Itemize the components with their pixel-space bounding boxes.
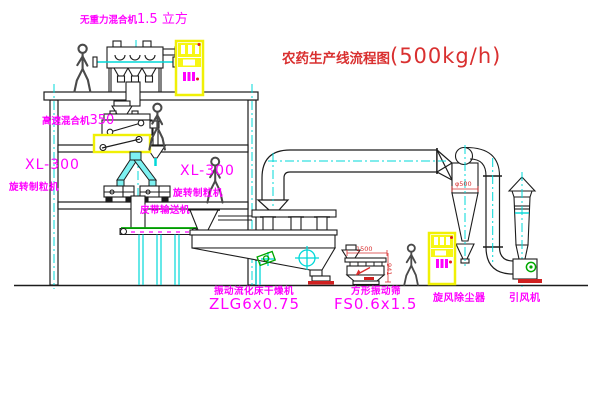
induced-draft-fan [513,259,542,283]
belt-conveyor [120,228,198,285]
dim-screen-length: 1500 [356,246,373,253]
fluid-bed-dryer [188,210,337,285]
duct-centerlines [268,153,446,206]
label-gravity-mixer: 无重力混合机1.5 立方 [80,10,188,26]
downcomer-duct [483,176,513,274]
label-screen-model: FS0.6x1.5 [334,297,417,312]
high-speed-mixer-name: 高速混合机 [42,116,90,127]
label-belt-conveyor: 皮带输送机 [140,206,190,216]
dim-cyclone-diameter: φ500 [455,181,472,188]
worker-figure [74,45,90,92]
label-dryer-model: ZLG6x0.75 [209,297,300,312]
control-cabinet-ground [429,233,455,284]
control-cabinet-top [176,41,203,95]
label-cyclone: 旋风除尘器 [433,294,486,304]
gravity-mixer-spec: 1.5 立方 [137,12,188,27]
page-title: 农药生产线流程图(500kg/h) [282,46,501,67]
high-speed-mixer-spec: 350 [90,113,115,128]
gravity-mixer-name: 无重力混合机 [80,15,137,26]
label-fan: 引风机 [509,294,541,304]
label-granulator-right-name: 旋转制粒机 [173,189,223,199]
y-chute [117,152,156,187]
title-capacity: (500kg/h) [390,44,501,68]
label-granulator-right-model: XL-300 [180,164,235,178]
label-granulator-left-model: XL-300 [25,158,80,172]
granulator-left [104,186,134,202]
exhaust-duct [258,148,452,210]
flow-diagram-canvas: 无重力混合机1.5 立方 农药生产线流程图(500kg/h) 高速混合机350 … [0,0,600,403]
label-granulator-left-name: 旋转制粒机 [9,183,59,193]
worker-figure [404,245,418,286]
dim-screen-height: 941 [386,263,393,275]
drive-base-cabinet [94,135,150,152]
title-text: 农药生产线流程图 [282,51,390,67]
label-high-speed-mixer: 高速混合机350 [42,111,114,127]
